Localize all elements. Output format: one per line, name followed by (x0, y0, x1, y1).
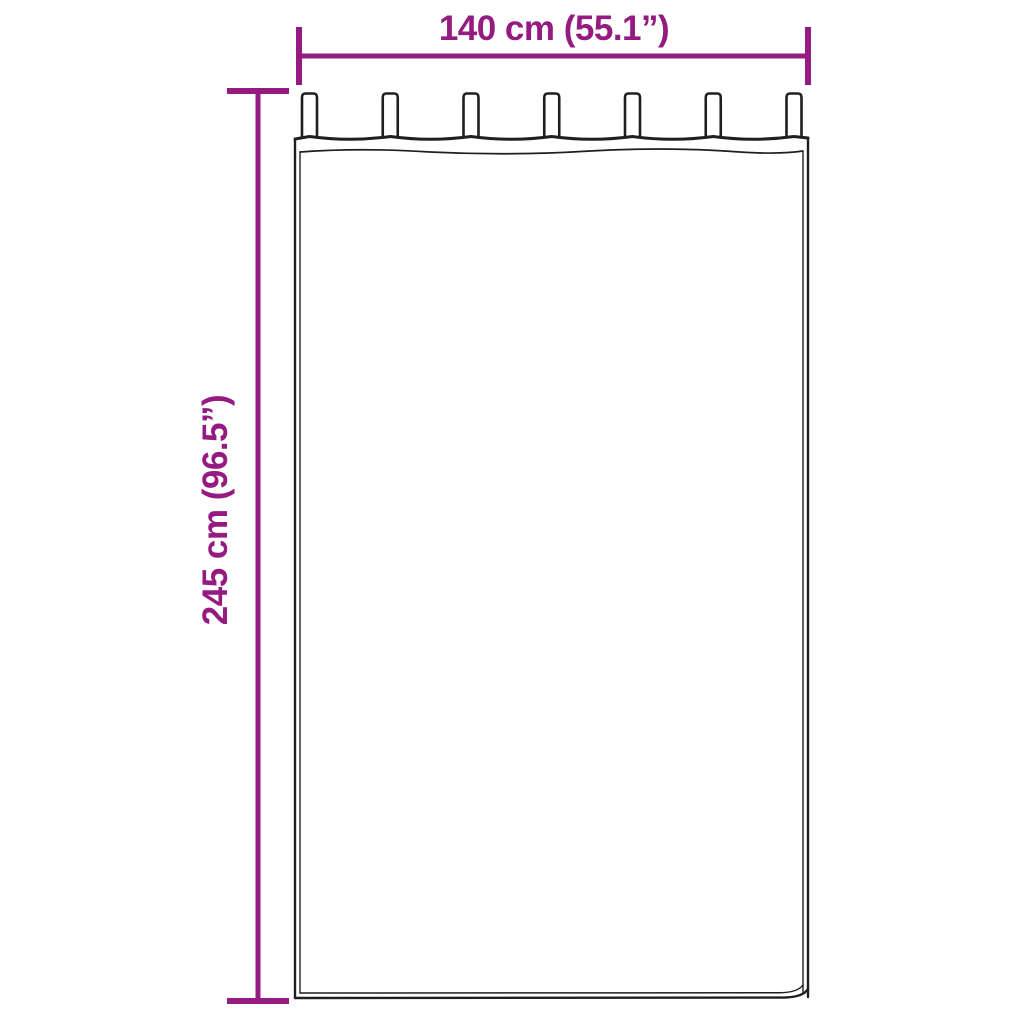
curtain-figure (295, 94, 808, 999)
curtain-tab (302, 94, 317, 138)
curtain-bottom-hem (300, 985, 803, 993)
curtain-tab (706, 94, 721, 138)
curtain-tab (544, 94, 559, 138)
height-dimension-label: 245 cm (96.5”) (196, 395, 236, 625)
curtain-top-edge (295, 137, 808, 140)
curtain-tab (464, 94, 479, 138)
curtain-tab (787, 94, 802, 138)
curtain-tabs (302, 94, 802, 138)
curtain-header-seam (300, 149, 803, 154)
curtain-tab (625, 94, 640, 138)
width-dimension-label: 140 cm (55.1”) (299, 9, 809, 49)
dimension-lines (227, 27, 808, 1001)
curtain-diagram-drawing (0, 0, 1024, 1024)
dimension-diagram: 140 cm (55.1”) 245 cm (96.5”) (0, 0, 1024, 1024)
curtain-tab (383, 94, 398, 138)
